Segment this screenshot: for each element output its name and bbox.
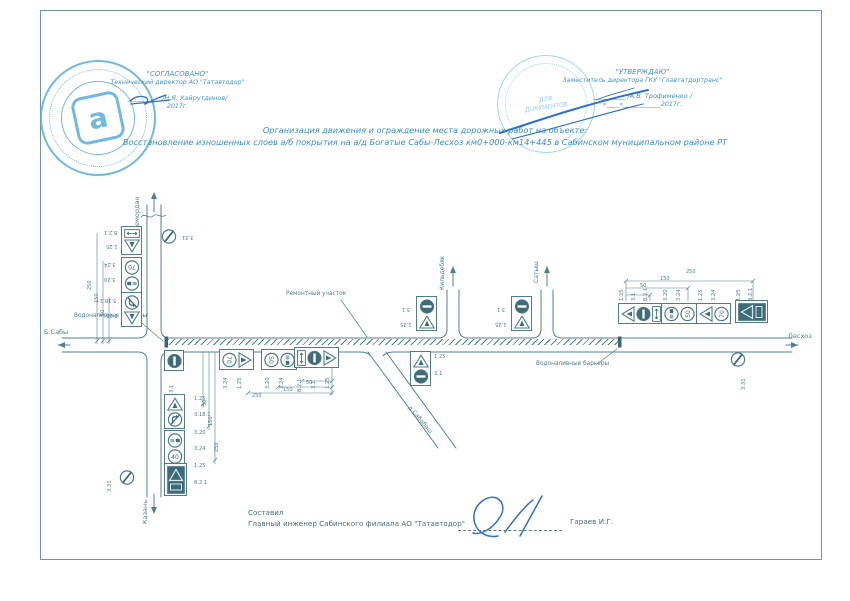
diagram-label: 3.1 — [434, 372, 442, 377]
scanned-drawing-sheet: а ДЛЯ ДОКУМЕНТОВ "СОГЛАСОВАНО" Техническ… — [0, 0, 850, 601]
diagram-label: Лесхоз — [788, 333, 812, 340]
diagram-label: 3.20 — [664, 289, 669, 301]
road-sign-w125 — [124, 239, 140, 253]
road-sign-w125 — [323, 350, 337, 366]
road-sign-plate821 — [297, 350, 306, 366]
diagram-label: 1.25 — [495, 321, 507, 326]
road-sign-w125 — [124, 311, 140, 325]
diagram-label: 8.2.1 — [298, 379, 303, 392]
road-sign-c31 — [413, 369, 429, 384]
diagram-label: 50 — [640, 284, 646, 289]
diagram-label: 1.25 — [699, 289, 704, 301]
road-sign-w125 — [238, 352, 252, 368]
diagram-label: 1.25 — [238, 377, 243, 389]
diagram-label: 3.31 — [742, 378, 747, 390]
road-sign-group — [161, 229, 177, 244]
road-sign-group — [618, 303, 663, 324]
road-sign-group: 40 — [164, 430, 185, 466]
diagram-label: 1.25 — [106, 312, 118, 317]
diagram-label: 3.24 — [712, 289, 717, 301]
road-sign-w125 — [167, 397, 183, 411]
diagram-label: 250 — [252, 394, 262, 399]
diagram-label: 150 — [209, 416, 214, 426]
svg-text:70: 70 — [718, 310, 725, 318]
diagram-label: 3.20 — [104, 276, 116, 281]
road-sign-s40: 40 — [167, 449, 183, 464]
diagram-label: Казань — [142, 500, 149, 524]
diagram-label: 3.24 — [104, 261, 116, 266]
road-sign-c31 — [307, 350, 322, 366]
road-sign-group — [121, 226, 142, 255]
road-sign-group — [164, 394, 185, 429]
road-sign-w125 — [699, 306, 713, 322]
diagram-label: Водоналивные барьеры — [536, 362, 609, 368]
road-sign-c320 — [664, 306, 679, 322]
road-sign-c31 — [514, 299, 530, 314]
road-sign-c31 — [419, 299, 435, 314]
diagram-label: 3.1 — [402, 306, 410, 311]
road-sign-group — [164, 350, 184, 371]
road-sign-w125 — [413, 354, 429, 368]
road-sign-c331 — [119, 470, 135, 485]
diagram-label: 3.18.2 — [100, 297, 117, 302]
diagram-label: 3.31 — [108, 480, 113, 492]
road-sign-plate821 — [652, 306, 661, 322]
road-sign-w125 — [419, 315, 435, 329]
road-sign-group — [164, 463, 187, 496]
road-sign-c31 — [167, 353, 182, 369]
road-sign-c320 — [167, 433, 183, 448]
diagram-label: 8.2.1 — [104, 229, 117, 234]
diagram-label: 3.1 — [312, 381, 317, 389]
road-sign-c320 — [280, 352, 295, 368]
road-sign-group: 70 — [696, 303, 731, 324]
road-sign-c3181 — [167, 412, 183, 427]
road-sign-group: 70 — [121, 257, 142, 293]
diagram-label: 8.2.1 — [194, 481, 207, 486]
svg-text:40: 40 — [171, 453, 179, 460]
diagram-label: 3.24 — [677, 289, 682, 301]
diagram-label: 3.1 — [632, 293, 637, 301]
diagram-label: 3.31 — [182, 234, 194, 239]
road-sign-group — [410, 351, 431, 386]
road-sign-c320 — [124, 276, 140, 291]
road-sign-group — [121, 292, 142, 327]
diagram-label: 1.25 — [400, 321, 412, 326]
svg-text:70: 70 — [128, 263, 136, 270]
diagram-label: 150 — [660, 277, 670, 282]
road-sign-plate821 — [124, 229, 140, 238]
svg-text:50: 50 — [684, 310, 691, 318]
road-sign-s70: 70 — [124, 260, 140, 275]
diagram-label: Кильдебяк — [440, 256, 446, 290]
road-sign-group — [730, 352, 746, 367]
road-sign-s70: 70 — [714, 306, 729, 322]
diagram-label: Сатыш — [534, 261, 540, 283]
diagram-label: 250 — [686, 270, 696, 275]
diagram-label: 1.25 — [434, 355, 446, 360]
road-sign-s50: 50 — [680, 306, 695, 322]
svg-text:50: 50 — [267, 356, 274, 364]
road-sign-shield — [167, 466, 185, 494]
road-sign-c31 — [636, 306, 651, 322]
road-sign-group: 50 — [261, 349, 297, 370]
road-sign-s50: 50 — [264, 352, 279, 368]
diagram-label: 3.24 — [224, 377, 229, 389]
road-sign-s70: 70 — [222, 352, 237, 368]
diagram-label: 50 — [203, 400, 208, 406]
svg-text:70: 70 — [225, 356, 232, 364]
diagram-label: 3.1 — [497, 306, 505, 311]
road-sign-group — [735, 300, 768, 323]
diagram-label: 3.20 — [266, 377, 271, 389]
road-sign-c331 — [161, 229, 177, 244]
diagram-label: 50 — [101, 310, 106, 316]
diagram-label: 250 — [88, 280, 93, 290]
road-sign-group — [294, 347, 339, 368]
diagram-label: 250 — [215, 442, 220, 452]
diagram-label: 3.20 — [194, 431, 206, 436]
road-sign-w125 — [514, 315, 530, 329]
diagram-label: 1.25 — [194, 464, 206, 469]
road-sign-shield — [738, 303, 766, 321]
road-sign-c331 — [730, 352, 746, 367]
road-sign-group: 70 — [219, 349, 254, 370]
diagram-label: Б.Сабы — [44, 329, 68, 336]
diagram-label: 3.24 — [194, 447, 206, 452]
diagram-label: 50 — [306, 381, 312, 386]
diagram-label: 8.2.1 — [644, 288, 649, 301]
diagram-label: 150 — [95, 293, 100, 303]
diagram-label: 1.25 — [106, 243, 118, 248]
road-sign-group — [119, 470, 135, 485]
diagram-label: 1.25 — [326, 377, 331, 389]
road-sign-group: 50 — [661, 303, 697, 324]
road-sign-w125 — [621, 306, 635, 322]
diagram-label: Ремонтный участок — [286, 292, 346, 298]
road-sign-group — [511, 296, 532, 331]
diagram-label: 3.1 — [170, 385, 175, 393]
road-sign-c3182 — [124, 295, 140, 310]
road-sign-group — [416, 296, 437, 331]
diagram-label: 150 — [283, 388, 293, 393]
diagram-label: 1.25 — [620, 289, 625, 301]
